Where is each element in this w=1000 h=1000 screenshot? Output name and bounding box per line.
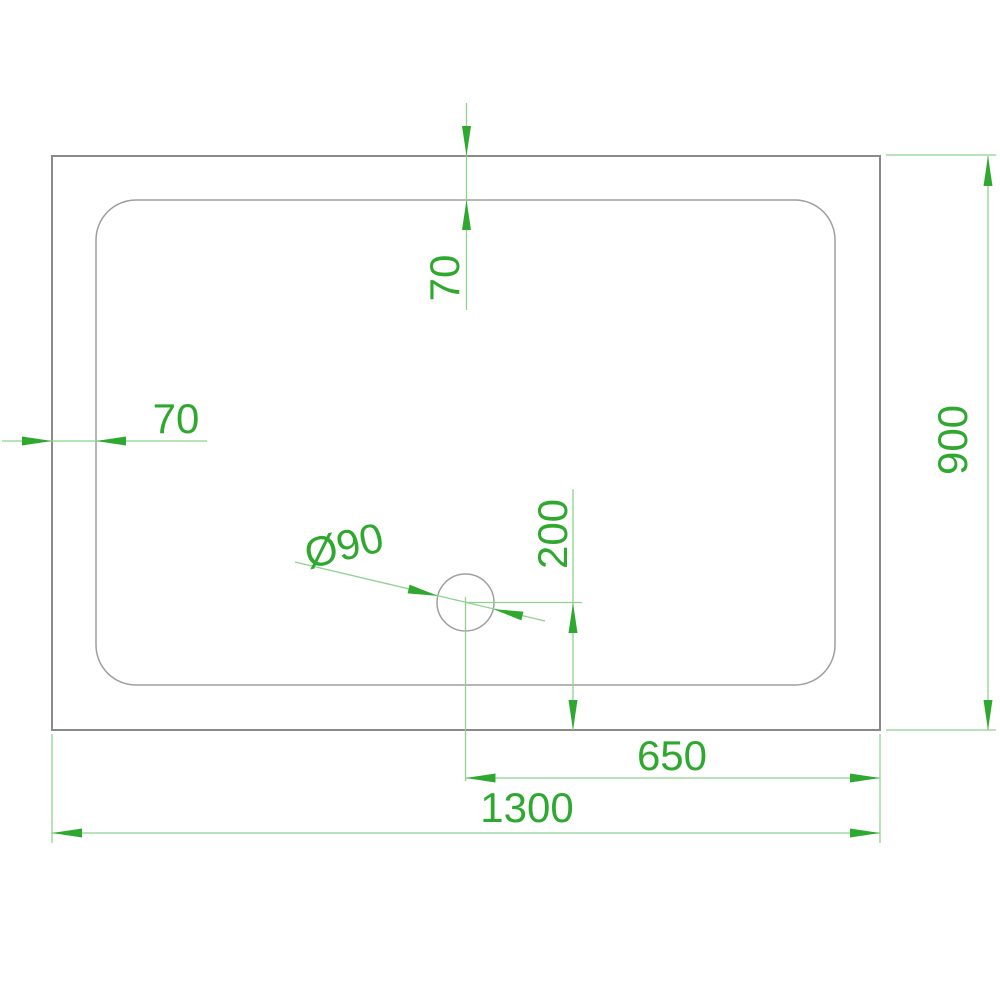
arrow-drain-height-down [569, 700, 578, 730]
arrow-width-left [52, 829, 82, 838]
arrow-depth-up [984, 156, 993, 186]
dim-label-drain-height: 200 [529, 499, 576, 569]
dim-label-drain-diameter: Ø90 [300, 514, 388, 578]
arrow-drain-right-right [850, 774, 880, 783]
arrow-depth-down [984, 700, 993, 730]
arrow-drain-height-up [569, 603, 578, 633]
arrow-rim-left-right [22, 437, 52, 446]
dim-label-drain-right: 650 [637, 732, 707, 779]
arrow-drain-right-left [466, 774, 496, 783]
dim-label-rim-top: 70 [421, 255, 468, 302]
arrow-rim-top-up [462, 200, 471, 230]
arrow-drain-diameter-left [408, 585, 438, 596]
dimension-labels: 70 70 900 200 Ø90 650 1300 [153, 255, 976, 831]
arrow-rim-left-left [96, 437, 126, 446]
dim-label-rim-left: 70 [153, 395, 200, 442]
technical-drawing-page: 70 70 900 200 Ø90 650 1300 [0, 0, 1000, 1000]
dimension-lines [2, 103, 996, 843]
arrow-width-right [850, 829, 880, 838]
dim-label-width: 1300 [480, 784, 573, 831]
arrow-drain-diameter-right [493, 609, 523, 620]
dim-label-depth: 900 [929, 405, 976, 475]
technical-drawing-canvas: 70 70 900 200 Ø90 650 1300 [0, 0, 1000, 1000]
arrow-rim-top-down [462, 126, 471, 156]
